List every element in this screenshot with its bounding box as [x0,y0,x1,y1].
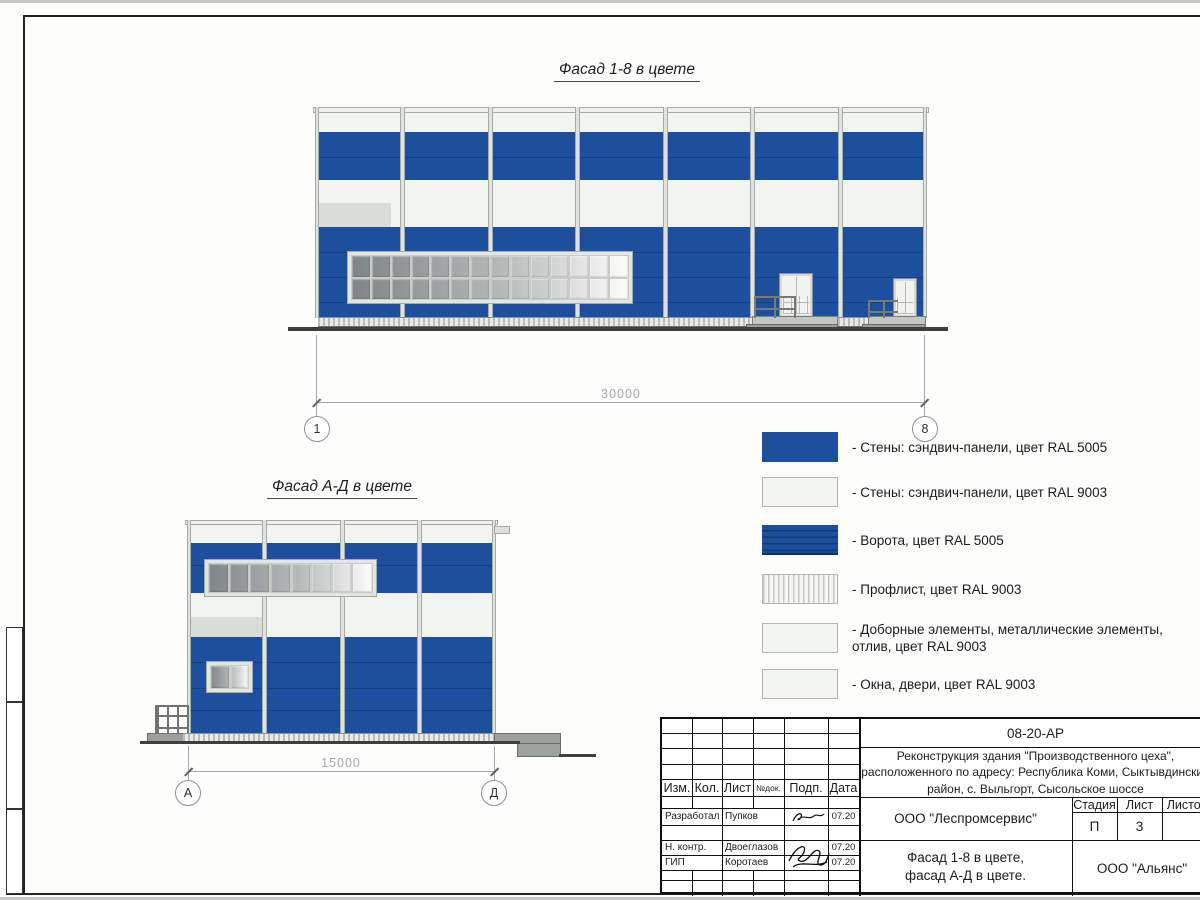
tb-role: Н. контр. [662,840,722,855]
facade-mullion [838,107,843,318]
roof-drain-outlet [494,526,510,534]
window-pane [450,278,470,301]
facade-1-8-title: Фасад 1-8 в цвете [554,61,700,82]
window-pane [229,563,250,593]
window-pane [530,255,550,278]
dimension-value: 15000 [321,756,361,770]
window-pane [411,255,431,278]
legend-swatch-solid-white [762,623,838,653]
window-pane [249,563,270,593]
frame-top-line [23,15,1200,17]
legend-swatch-hatch-vertical [762,574,838,604]
tb-sheet-value: 3 [1117,812,1162,840]
window-pane [311,563,332,593]
axis-marker-a: А [175,780,201,806]
facade-corner-post [923,107,927,318]
window-pane [470,255,490,278]
railing [774,296,776,318]
window-pane [490,255,510,278]
window-pane [351,278,371,301]
tb-project-name: Реконструкция здания "Производственного … [859,748,1200,797]
frame-margin-cell [6,702,23,809]
dimension-value: 30000 [601,387,641,401]
railing [794,296,796,318]
legend-label: - Ворота, цвет RAL 5005 [852,532,1004,549]
legend-label: - Доборные элементы, металлические элеме… [852,621,1198,655]
signature [788,810,826,824]
facade-mullion [750,107,755,318]
tb-document-code: 08-20-АР [859,719,1200,747]
tb-col-kol: Кол. [692,779,722,796]
facade-mullion [262,520,267,733]
facade-a-d-drawing [187,520,496,733]
window-pane [510,278,530,301]
legend-item: - Ворота, цвет RAL 5005 [762,525,1198,555]
tb-sheet-title: Фасад 1-8 в цвете, фасад А-Д в цвете. [859,849,1072,889]
page-top-edge [0,0,1200,3]
window-pane [550,255,570,278]
facade-mullions [187,520,496,733]
legend-item: - Доборные элементы, металлические элеме… [762,621,1198,655]
ground-line [288,327,948,331]
axis-marker-d: Д [481,780,507,806]
frame-left-line [23,15,25,894]
title-block: Изм. Кол. Лист №док. Подп. Дата Разработ… [660,717,1200,894]
window-pane [569,278,589,301]
window-pane [351,255,371,278]
facade-corner-post [492,520,496,733]
window-pane [609,278,629,301]
tb-date: 07.20 [828,840,859,855]
tb-designer-org: ООО "Леспромсервис" [859,797,1072,840]
window-pane [589,255,609,278]
facade-a-d-title: Фасад А-Д в цвете [267,478,417,499]
window-pane [332,563,353,593]
ground-line [559,754,596,757]
window-pane [609,255,629,278]
extension-line [188,746,189,780]
legend-item: - Стены: сэндвич-панели, цвет RAL 9003 [762,477,1198,507]
tb-sheets-value [1162,812,1200,840]
ribbon-window [348,252,632,303]
signature [785,839,831,871]
window-pane [589,278,609,301]
window-pane [230,665,250,689]
window-pane [490,278,510,301]
railing [868,300,870,318]
window-pane [352,563,373,593]
window-pane [210,665,230,689]
legend-item: - Профлист, цвет RAL 9003 [762,574,1198,604]
window-pane [510,255,530,278]
window-pane [270,563,291,593]
tb-col-ndok: №док. [753,779,784,796]
window-pane [450,255,470,278]
axis-marker-1: 1 [304,416,330,442]
frame-margin-cell [6,627,23,702]
window-pane [208,563,229,593]
ribbon-window [205,560,376,596]
facade-mullion [663,107,668,318]
window-pane [430,278,450,301]
window-pane [411,278,431,301]
ground-line [140,741,520,744]
window-pane [291,563,312,593]
tb-customer-org: ООО "Альянс" [1072,840,1200,896]
dimension-line [188,771,495,772]
legend-swatch-solid-white [762,477,838,507]
legend: - Стены: сэндвич-панели, цвет RAL 5005- … [762,432,1198,699]
legend-label: - Окна, двери, цвет RAL 9003 [852,676,1035,693]
tb-stage-header: Стадия [1072,797,1117,812]
loading-dock-step [517,743,561,757]
facade-mullion [417,520,422,733]
tb-col-podp: Подп. [784,779,828,796]
window-pane [371,255,391,278]
facade-mullion [340,520,345,733]
legend-label: - Стены: сэндвич-панели, цвет RAL 5005 [852,439,1107,456]
dimension-line [316,402,925,403]
tb-col-izm: Изм. [662,779,692,796]
legend-swatch-gate-blue [762,525,838,555]
railing [883,300,885,318]
window-pane [391,278,411,301]
facade-corner-post [187,520,191,733]
frame-margin-cell [6,809,23,894]
window-pane [530,278,550,301]
extension-line [494,746,495,780]
tb-role: ГИП [662,855,722,870]
tb-sheets-header: Листов [1162,797,1200,812]
window-pane [470,278,490,301]
tb-date: 07.20 [828,855,859,870]
tb-sheet-header: Лист [1117,797,1162,812]
tb-name: Коротаев [722,855,784,870]
window-pane [550,278,570,301]
tb-col-list: Лист [722,779,753,796]
window-pane [391,255,411,278]
tb-name: Пупков [722,808,784,825]
legend-item: - Стены: сэндвич-панели, цвет RAL 5005 [762,432,1198,462]
legend-label: - Профлист, цвет RAL 9003 [852,581,1021,598]
drawing-sheet: Фасад 1-8 в цвете [0,0,1200,900]
legend-swatch-solid-blue [762,432,838,462]
tb-col-data: Дата [828,779,859,796]
legend-item: - Окна, двери, цвет RAL 9003 [762,669,1198,699]
tb-name: Двоеглазов [722,840,784,855]
legend-label: - Стены: сэндвич-панели, цвет RAL 9003 [852,484,1107,501]
window-pane [569,255,589,278]
legend-swatch-solid-white [762,669,838,699]
tb-role: Разработал [662,808,722,825]
window-pane [371,278,391,301]
tb-stage-value: П [1072,812,1117,840]
facade-corner-post [315,107,319,318]
tb-date: 07.20 [828,808,859,825]
facade-1-8-drawing [315,107,927,318]
window-pane [430,255,450,278]
small-window [207,662,252,692]
railing [754,296,756,318]
